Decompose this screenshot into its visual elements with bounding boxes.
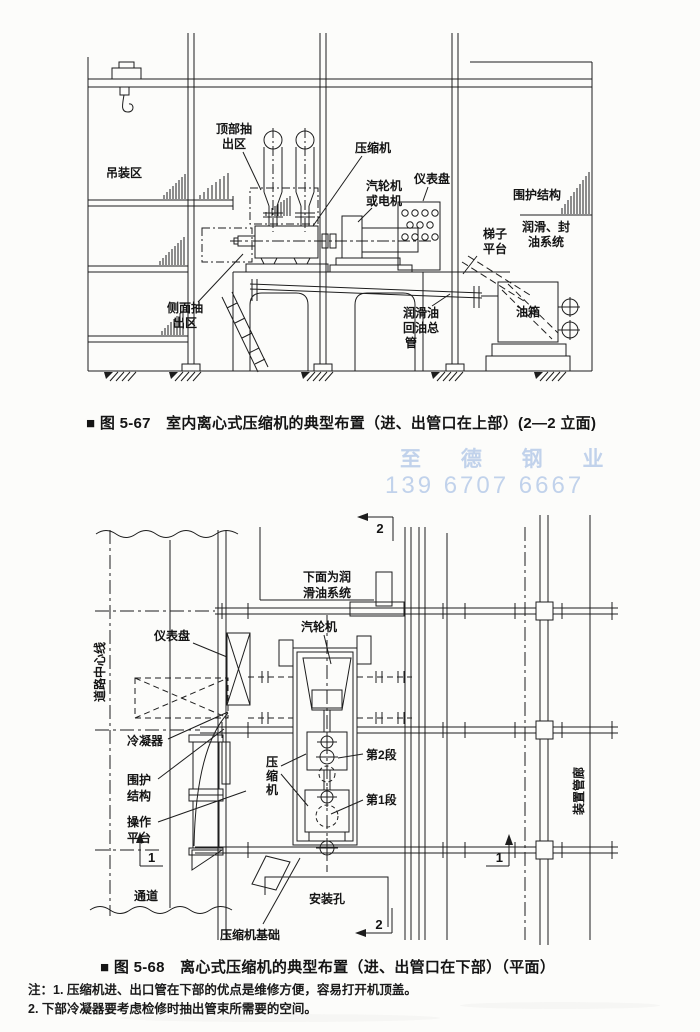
label-side-extraction: 侧面抽 [167, 300, 203, 315]
label-installation-hole: 安装孔 [309, 891, 345, 906]
label-lifting-area: 吊装区 [106, 165, 142, 180]
section-marker-2-bottom: 2 [375, 917, 382, 932]
label-enclosure: 结构 [127, 788, 151, 803]
figure-5-68-diagram: 2 2 1 1 下面为润 滑油系统 仪表盘 汽轮机 道路中心线 冷凝器 围护 结… [0, 500, 700, 952]
label-passage: 通道 [134, 888, 158, 903]
watermark-phone: 139 6707 6667 [385, 472, 584, 500]
label-compressor: 压缩机 [355, 140, 391, 155]
label-turbine-or-motor: 汽轮机 [366, 178, 402, 193]
scanned-book-page: 吊装区 顶部抽 出区 压缩机 汽轮机 或电机 仪表盘 围护结构 润滑、封 油系统… [0, 0, 700, 1032]
label-oil-return-header: 管 [405, 335, 417, 350]
label-lube-seal-system: 润滑、封 [522, 219, 570, 234]
label-stage1: 第1段 [366, 792, 398, 807]
section-marker-1-right: 1 [496, 850, 503, 865]
watermark-company: 至 德 钢 业 [400, 443, 621, 473]
label-enclosure: 围护结构 [513, 187, 561, 202]
note-line-1: 注：1. 压缩机进、出口管在下部的优点是维修方便，容易打开机顶盖。 [28, 979, 417, 998]
label-oil-return-header: 润滑油 [403, 305, 439, 320]
figure1-labels: 吊装区 顶部抽 出区 压缩机 汽轮机 或电机 仪表盘 围护结构 润滑、封 油系统… [106, 121, 570, 350]
label-lube-system-below: 下面为润 [303, 569, 351, 584]
instrument-panel [398, 202, 440, 270]
label-top-extraction: 顶部抽 [216, 121, 252, 136]
label-pipe-gallery: 装置管廊 [571, 767, 586, 816]
label-instrument-panel: 仪表盘 [413, 171, 450, 186]
figure-5-67-diagram: 吊装区 顶部抽 出区 压缩机 汽轮机 或电机 仪表盘 围护结构 润滑、封 油系统… [0, 0, 700, 440]
scan-smudge [460, 1002, 660, 1009]
section-marker-2-top: 2 [376, 521, 383, 536]
label-side-extraction: 出区 [173, 315, 197, 330]
label-compressor: 压 [266, 755, 278, 769]
label-steam-turbine: 汽轮机 [301, 619, 337, 634]
hatch-marks [104, 172, 589, 381]
label-condenser: 冷凝器 [127, 733, 164, 748]
machine-train-plan [248, 615, 412, 872]
building-structure [88, 33, 592, 371]
label-operating-platform: 操作 [127, 814, 151, 829]
label-compressor: 缩 [266, 768, 278, 783]
label-lube-system-below: 滑油系统 [303, 585, 351, 600]
label-ladder-platform: 平台 [483, 241, 507, 256]
label-operating-platform: 平台 [127, 830, 151, 845]
label-turbine-or-motor: 或电机 [366, 193, 402, 208]
label-road-centerline: 道路中心线 [92, 642, 107, 702]
label-compressor: 机 [266, 782, 278, 797]
section-marker-1-left: 1 [148, 850, 155, 865]
label-top-extraction: 出区 [222, 136, 246, 151]
label-instrument-panel: 仪表盘 [153, 628, 190, 643]
scan-smudge [120, 1014, 440, 1022]
label-lube-seal-system: 油系统 [528, 234, 564, 249]
label-oil-return-header: 回油总 [403, 320, 439, 335]
label-stage2: 第2段 [366, 747, 398, 762]
label-ladder-platform: 梯子 [483, 226, 507, 241]
figure-5-68-caption: ■ 图 5-68 离心式压缩机的典型布置（进、出管口在下部）（平面） [100, 956, 555, 977]
figure-5-67-caption: ■ 图 5-67 室内离心式压缩机的典型布置（进、出管口在上部）(2—2 立面) [86, 412, 596, 433]
label-enclosure: 围护 [127, 772, 151, 787]
label-compressor-foundation: 压缩机基础 [220, 927, 280, 942]
label-oil-tank: 油箱 [516, 304, 540, 319]
